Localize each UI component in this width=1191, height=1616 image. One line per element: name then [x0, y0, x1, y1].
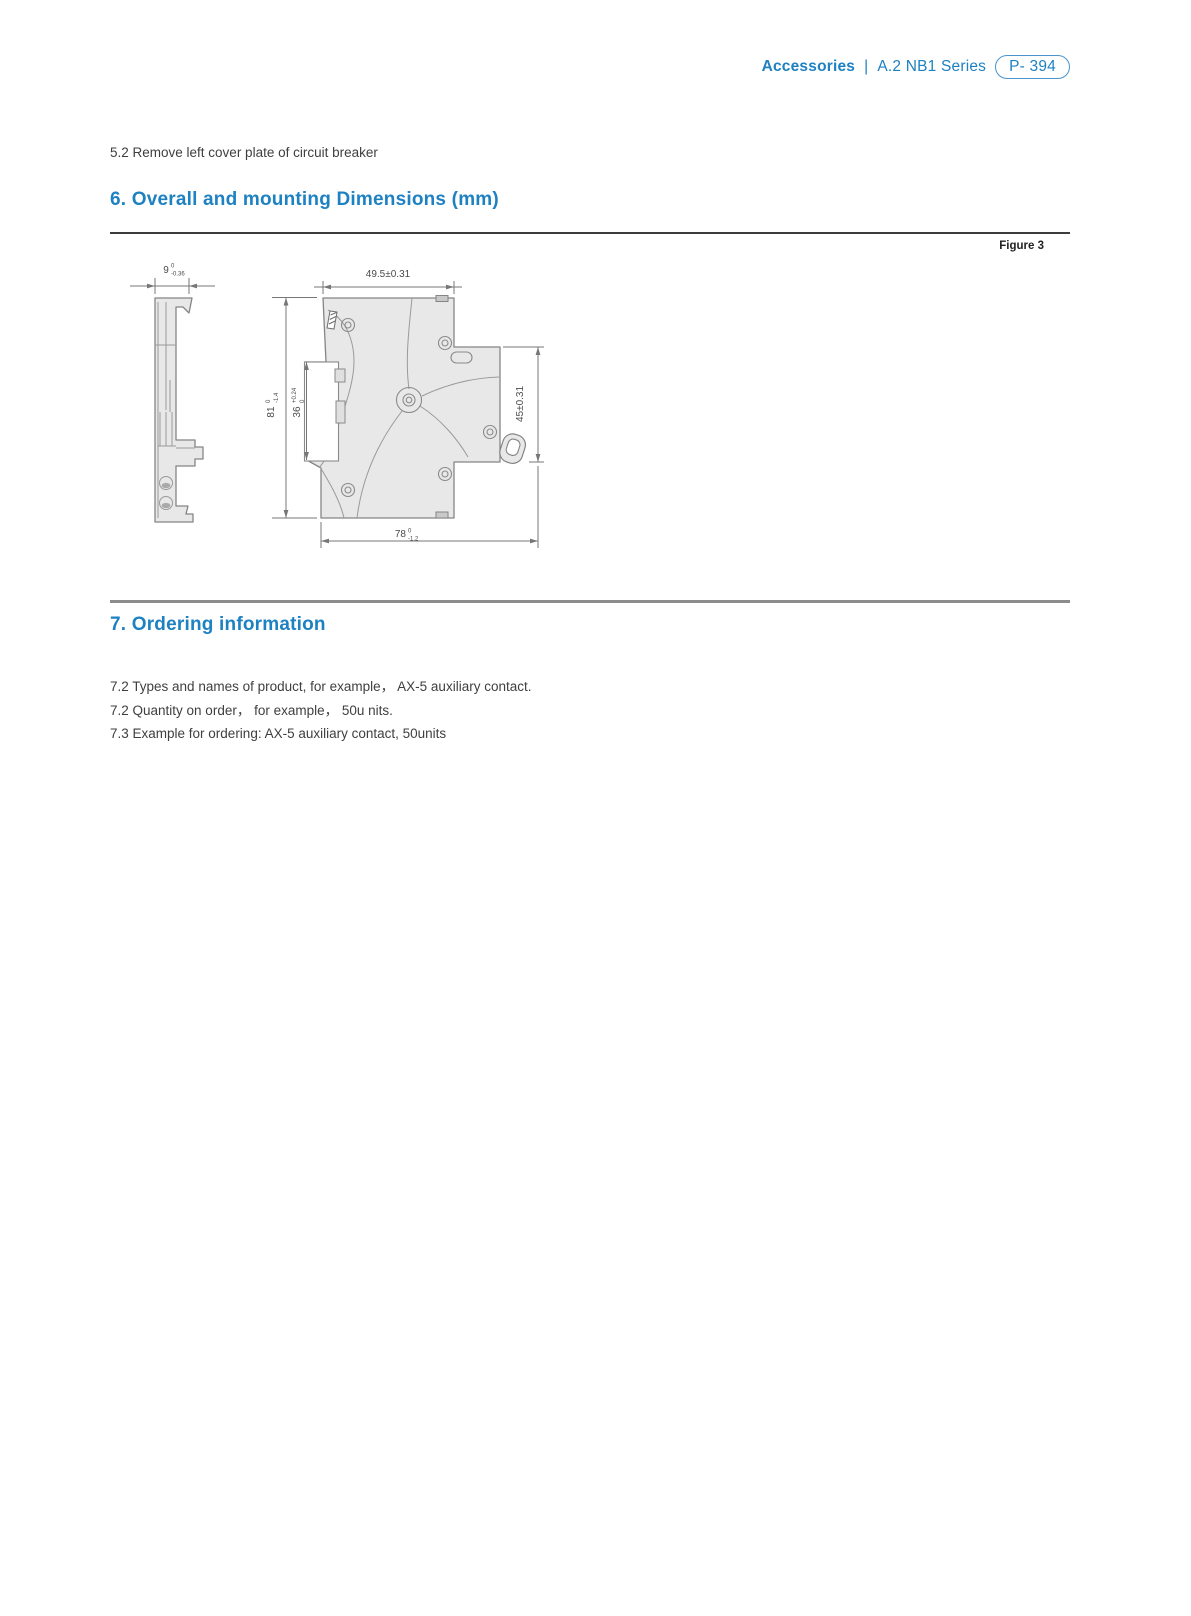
- dim-side-width: 9 0 -0.36: [130, 264, 215, 295]
- ordering-line: 7.2 Types and names of product, for exam…: [110, 675, 531, 699]
- side-view-drawing: [155, 298, 203, 522]
- front-profile-drawing: [305, 296, 529, 519]
- divider-line-bottom: [110, 600, 1070, 603]
- header-divider: |: [864, 58, 868, 76]
- dim-overall-width-label: 49.5±0.31: [366, 269, 411, 280]
- ordering-line: 7.3 Example for ordering: AX-5 auxiliary…: [110, 722, 531, 746]
- dim-side-width-lower: -0.36: [171, 272, 185, 278]
- divider-line-top: [110, 232, 1070, 234]
- din-rail-section: [305, 362, 339, 461]
- ordering-info: 7.2 Types and names of product, for exam…: [110, 675, 531, 746]
- header-series-name: A.2 NB1 Series: [877, 58, 986, 76]
- section7-heading: 7. Ordering information: [110, 614, 326, 636]
- page-number-badge: P- 394: [995, 55, 1070, 79]
- dim-din-recess-nominal: 36: [292, 406, 303, 418]
- dim-base-width-nominal: 78: [395, 529, 407, 540]
- dim-side-width-nominal: 9: [163, 265, 169, 276]
- datasheet-page: Accessories | A.2 NB1 Series P- 394 5.2 …: [0, 0, 1191, 1616]
- dim-base-width-upper: 0: [408, 529, 412, 535]
- top-edge-tab: [436, 296, 448, 302]
- bottom-edge-tab: [436, 512, 448, 518]
- dim-din-recess: 36 +0.24 0: [292, 362, 309, 460]
- rail-grip-tab-lower: [336, 401, 345, 423]
- dim-side-width-upper: 0: [171, 264, 175, 270]
- dim-overall-height-lower: -1.4: [274, 392, 280, 403]
- dim-step-height-label: 45±0.31: [515, 386, 526, 423]
- dim-base-width-lower: -1.2: [408, 537, 419, 543]
- dim-overall-width: 49.5±0.31: [314, 269, 462, 294]
- dim-din-recess-upper: +0.24: [292, 387, 298, 403]
- figure-3-drawing: 9 0 -0.36: [100, 250, 580, 565]
- rail-grip-tab-upper: [335, 369, 345, 382]
- rail-latch: [497, 431, 528, 466]
- page-header: Accessories | A.2 NB1 Series P- 394: [762, 55, 1070, 79]
- header-section-name: Accessories: [762, 58, 856, 76]
- dimension-drawing-svg: 9 0 -0.36: [100, 250, 580, 560]
- step-note: 5.2 Remove left cover plate of circuit b…: [110, 145, 378, 160]
- section6-heading: 6. Overall and mounting Dimensions (mm): [110, 189, 499, 211]
- figure-label: Figure 3: [999, 240, 1044, 252]
- dim-overall-height-upper: 0: [266, 399, 272, 403]
- ordering-line: 7.2 Quantity on order， for example， 50u …: [110, 699, 531, 723]
- dim-overall-height-nominal: 81: [266, 406, 277, 418]
